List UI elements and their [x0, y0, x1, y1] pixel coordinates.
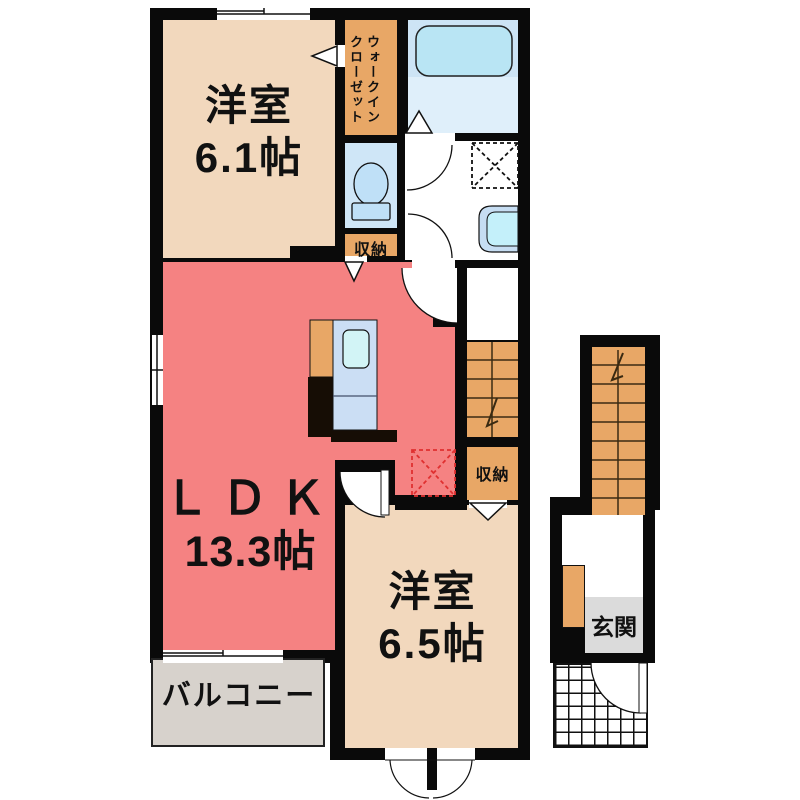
wall-west2-top — [395, 495, 467, 510]
toilet-room — [345, 143, 397, 228]
balcony-window-gap — [163, 650, 283, 663]
label-genkan: 玄関 — [585, 608, 643, 642]
label-walk-in-closet: ウォークイン クローゼット — [347, 27, 381, 132]
internal-stairs — [467, 342, 518, 437]
top-window-gap — [217, 8, 310, 20]
entrance-porch-grid — [553, 663, 648, 748]
label-western-room-1: 洋室 6.1帖 — [163, 80, 335, 184]
label-ldk: ＬＤＫ 13.3帖 — [158, 470, 343, 578]
shoe-cabinet — [562, 565, 585, 628]
wic-line1: ウォークイン — [364, 27, 381, 132]
wic-line2: クローゼット — [347, 27, 364, 132]
bathroom-upper — [408, 20, 518, 77]
storage-mid-door-gap — [469, 500, 507, 508]
bathroom-lower — [408, 77, 518, 133]
label-western-room-2: 洋室 6.5帖 — [350, 566, 515, 670]
stair-landing — [467, 268, 518, 340]
ldk-main — [163, 262, 455, 460]
door-arc-bottom-left — [390, 760, 429, 798]
left-window-gap — [152, 335, 163, 405]
wall-stub — [433, 315, 467, 327]
label-balcony: バルコニー — [158, 672, 320, 714]
ldk-nook — [395, 460, 455, 497]
washroom — [405, 141, 518, 260]
ldk-size: 13.3帖 — [158, 526, 343, 578]
wall-landing-left — [455, 262, 467, 447]
floorplan-canvas: 洋室 6.1帖 ウォークイン クローゼット 収納 収納 ＬＤＫ 13.3帖 洋室… — [0, 0, 800, 800]
ldk-name: ＬＤＫ — [158, 470, 343, 526]
wall-partition-top — [290, 246, 345, 262]
bath-door-gap — [405, 133, 455, 141]
room-name: 洋室 — [350, 566, 515, 618]
closet-door-gap — [335, 45, 345, 67]
annex-stairs — [592, 347, 645, 515]
door-arc-bottom-right — [433, 760, 472, 798]
label-storage-mid: 収納 — [467, 461, 518, 485]
label-storage-top: 収納 — [345, 236, 397, 260]
room-size: 6.1帖 — [163, 132, 335, 184]
room-name: 洋室 — [163, 80, 335, 132]
washroom-door-gap — [412, 260, 455, 268]
bottom-door-post — [427, 748, 437, 790]
room-size: 6.5帖 — [350, 618, 515, 670]
